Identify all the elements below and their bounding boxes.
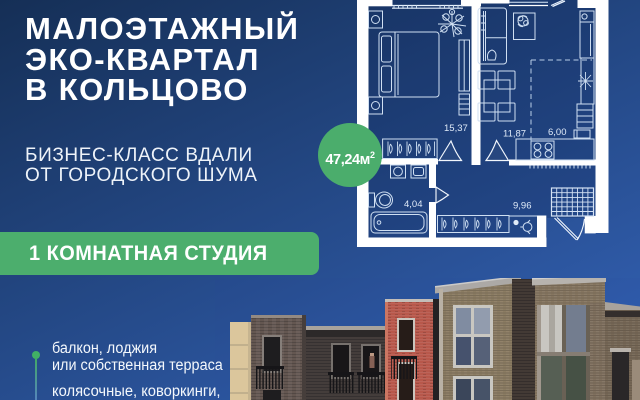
svg-text:15,37: 15,37	[444, 123, 468, 134]
svg-text:11,87: 11,87	[503, 129, 526, 140]
svg-text:4,04: 4,04	[404, 199, 423, 210]
svg-text:6,00: 6,00	[548, 127, 567, 138]
svg-text:9,96: 9,96	[513, 201, 532, 212]
